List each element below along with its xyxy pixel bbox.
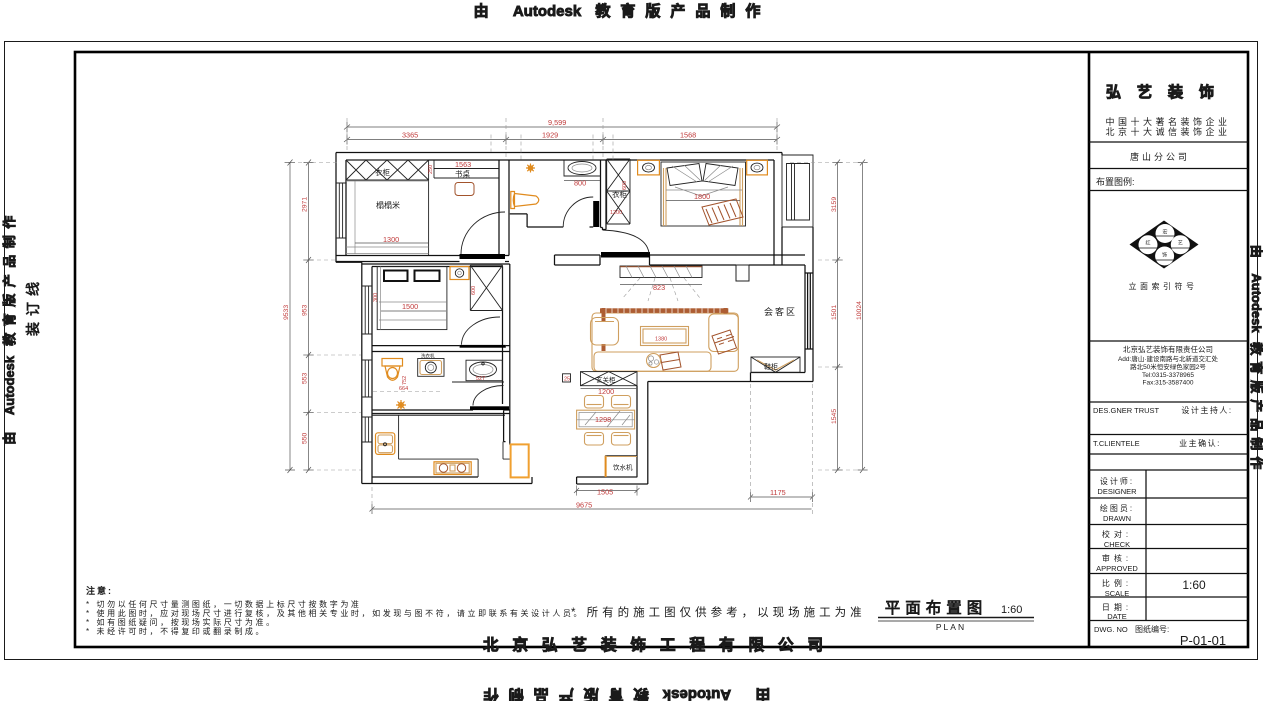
svg-text:Add:唐山·建设南路与北新道交汇处: Add:唐山·建设南路与北新道交汇处 (1118, 354, 1219, 363)
svg-text:衣柜: 衣柜 (375, 167, 390, 177)
svg-text:平面布置图: 平面布置图 (885, 599, 988, 617)
svg-text:装订线: 装订线 (25, 276, 41, 336)
svg-text:Tel:0315-3378965: Tel:0315-3378965 (1142, 372, 1194, 379)
svg-text:527: 527 (476, 376, 485, 382)
svg-text:DRAWN: DRAWN (1103, 514, 1131, 523)
svg-text:1505: 1505 (597, 488, 613, 497)
svg-text:* 切勿以任何尺寸量测图纸，一切数据上标尺寸按数字为准: * 切勿以任何尺寸量测图纸，一切数据上标尺寸按数字为准 (86, 599, 362, 609)
svg-text:饮水机: 饮水机 (613, 463, 633, 472)
svg-text:1298: 1298 (595, 415, 611, 424)
svg-text:宏: 宏 (1162, 229, 1167, 236)
svg-text:日期:: 日期: (1102, 603, 1132, 612)
svg-text:布置图例:: 布置图例: (1096, 176, 1135, 187)
svg-text:1200: 1200 (598, 387, 614, 396)
svg-text:10024: 10024 (856, 301, 863, 320)
svg-text:9533: 9533 (283, 305, 290, 320)
svg-text:DWG. NO: DWG. NO (1094, 625, 1128, 634)
svg-text:1:60: 1:60 (1182, 578, 1206, 592)
svg-text:红: 红 (1145, 240, 1150, 247)
svg-text:664: 664 (399, 386, 408, 392)
svg-text:APPROVED: APPROVED (1096, 564, 1138, 573)
svg-text:550: 550 (302, 432, 309, 444)
svg-text:图纸编号:: 图纸编号: (1135, 624, 1169, 634)
svg-text:鞋柜: 鞋柜 (764, 362, 778, 371)
svg-text:会客区: 会客区 (764, 306, 797, 317)
svg-text:1501: 1501 (831, 305, 838, 320)
svg-text:审核:: 审核: (1102, 553, 1132, 563)
svg-text:3365: 3365 (402, 131, 418, 140)
svg-text:823: 823 (653, 283, 665, 292)
svg-text:553: 553 (302, 372, 309, 384)
svg-text:DESIGNER: DESIGNER (1097, 487, 1137, 496)
svg-text:洗衣机: 洗衣机 (421, 353, 435, 360)
svg-text:校对:: 校对: (1102, 529, 1132, 539)
svg-text:1:60: 1:60 (1001, 604, 1022, 616)
svg-text:饰: 饰 (1162, 252, 1167, 259)
svg-text:由 Autodesk 教育版产品制作: 由 Autodesk 教育版产品制作 (474, 2, 771, 20)
svg-text:1175: 1175 (770, 488, 786, 497)
svg-text:北京十大诚信装饰企业: 北京十大诚信装饰企业 (1105, 126, 1230, 137)
svg-text:DES.GNER TRUST: DES.GNER TRUST (1093, 406, 1160, 415)
svg-text:榻榻米: 榻榻米 (376, 200, 400, 210)
svg-text:弘艺装饰: 弘艺装饰 (1106, 83, 1230, 101)
svg-text:Fax:315-3587400: Fax:315-3587400 (1143, 380, 1194, 387)
svg-text:* 所有的施工图仅供参考，以现场施工为准: * 所有的施工图仅供参考，以现场施工为准 (571, 605, 866, 619)
svg-text:注意:: 注意: (86, 585, 113, 596)
svg-text:由 Autodesk 教育版产品制作: 由 Autodesk 教育版产品制作 (1249, 245, 1263, 475)
svg-text:书桌: 书桌 (455, 169, 470, 179)
svg-text:600: 600 (622, 181, 628, 190)
svg-text:北京弘艺装饰有限责任公司: 北京弘艺装饰有限责任公司 (1123, 344, 1213, 354)
svg-text:1545: 1545 (831, 409, 838, 424)
svg-text:300: 300 (373, 293, 379, 302)
svg-text:* 使用此图时，应对现场尺寸进行复核，及其他相关专业时，如发: * 使用此图时，应对现场尺寸进行复核，及其他相关专业时，如发现与图不符，请立即联… (86, 608, 584, 618)
svg-text:比例:: 比例: (1102, 578, 1132, 588)
svg-text:1929: 1929 (542, 131, 558, 140)
svg-text:立面索引符号: 立面索引符号 (1129, 281, 1198, 291)
svg-text:PLAN: PLAN (936, 622, 966, 632)
svg-text:1568: 1568 (680, 131, 696, 140)
svg-text:T.CLIENTELE: T.CLIENTELE (1093, 439, 1140, 448)
svg-text:1563: 1563 (455, 160, 471, 169)
svg-text:中国十大著名装饰企业: 中国十大著名装饰企业 (1105, 116, 1230, 127)
svg-text:1200: 1200 (610, 210, 622, 216)
svg-text:* 如有图纸疑问，按现场实际尺寸为准。: * 如有图纸疑问，按现场实际尺寸为准。 (86, 617, 277, 627)
svg-text:玄关柜: 玄关柜 (596, 375, 616, 384)
svg-text:DATE: DATE (1107, 612, 1126, 621)
svg-text:25: 25 (564, 377, 570, 383)
svg-text:路北50米恒安绿色家园2号: 路北50米恒安绿色家园2号 (1130, 362, 1206, 371)
svg-text:设计师:: 设计师: (1100, 476, 1134, 486)
svg-text:唐山分公司: 唐山分公司 (1130, 151, 1190, 162)
svg-text:3159: 3159 (831, 197, 838, 212)
svg-text:953: 953 (302, 304, 309, 316)
svg-text:800: 800 (574, 179, 586, 188)
svg-text:9675: 9675 (576, 501, 592, 510)
svg-text:由 Autodesk 教育版产品制作: 由 Autodesk 教育版产品制作 (474, 686, 771, 701)
svg-text:600: 600 (471, 286, 477, 295)
svg-text:1300: 1300 (383, 235, 399, 244)
svg-text:752: 752 (402, 376, 408, 385)
svg-text:业主确认:: 业主确认: (1179, 438, 1221, 448)
svg-text:250: 250 (428, 165, 434, 174)
svg-text:设计主持人:: 设计主持人: (1181, 405, 1232, 415)
svg-text:1380: 1380 (655, 337, 667, 343)
svg-text:艺: 艺 (1178, 241, 1183, 247)
svg-text:P-01-01: P-01-01 (1180, 633, 1226, 648)
svg-text:9,599: 9,599 (548, 118, 566, 127)
svg-text:1500: 1500 (402, 302, 418, 311)
svg-text:* 未经许可时，不得复印或翻录制成。: * 未经许可时，不得复印或翻录制成。 (86, 626, 266, 636)
svg-text:绘图员:: 绘图员: (1100, 503, 1134, 513)
svg-text:2971: 2971 (302, 197, 309, 212)
svg-text:北京弘艺装饰工程有限公司: 北京弘艺装饰工程有限公司 (483, 635, 837, 654)
svg-text:CHECK: CHECK (1104, 540, 1130, 549)
svg-text:1800: 1800 (694, 192, 710, 201)
